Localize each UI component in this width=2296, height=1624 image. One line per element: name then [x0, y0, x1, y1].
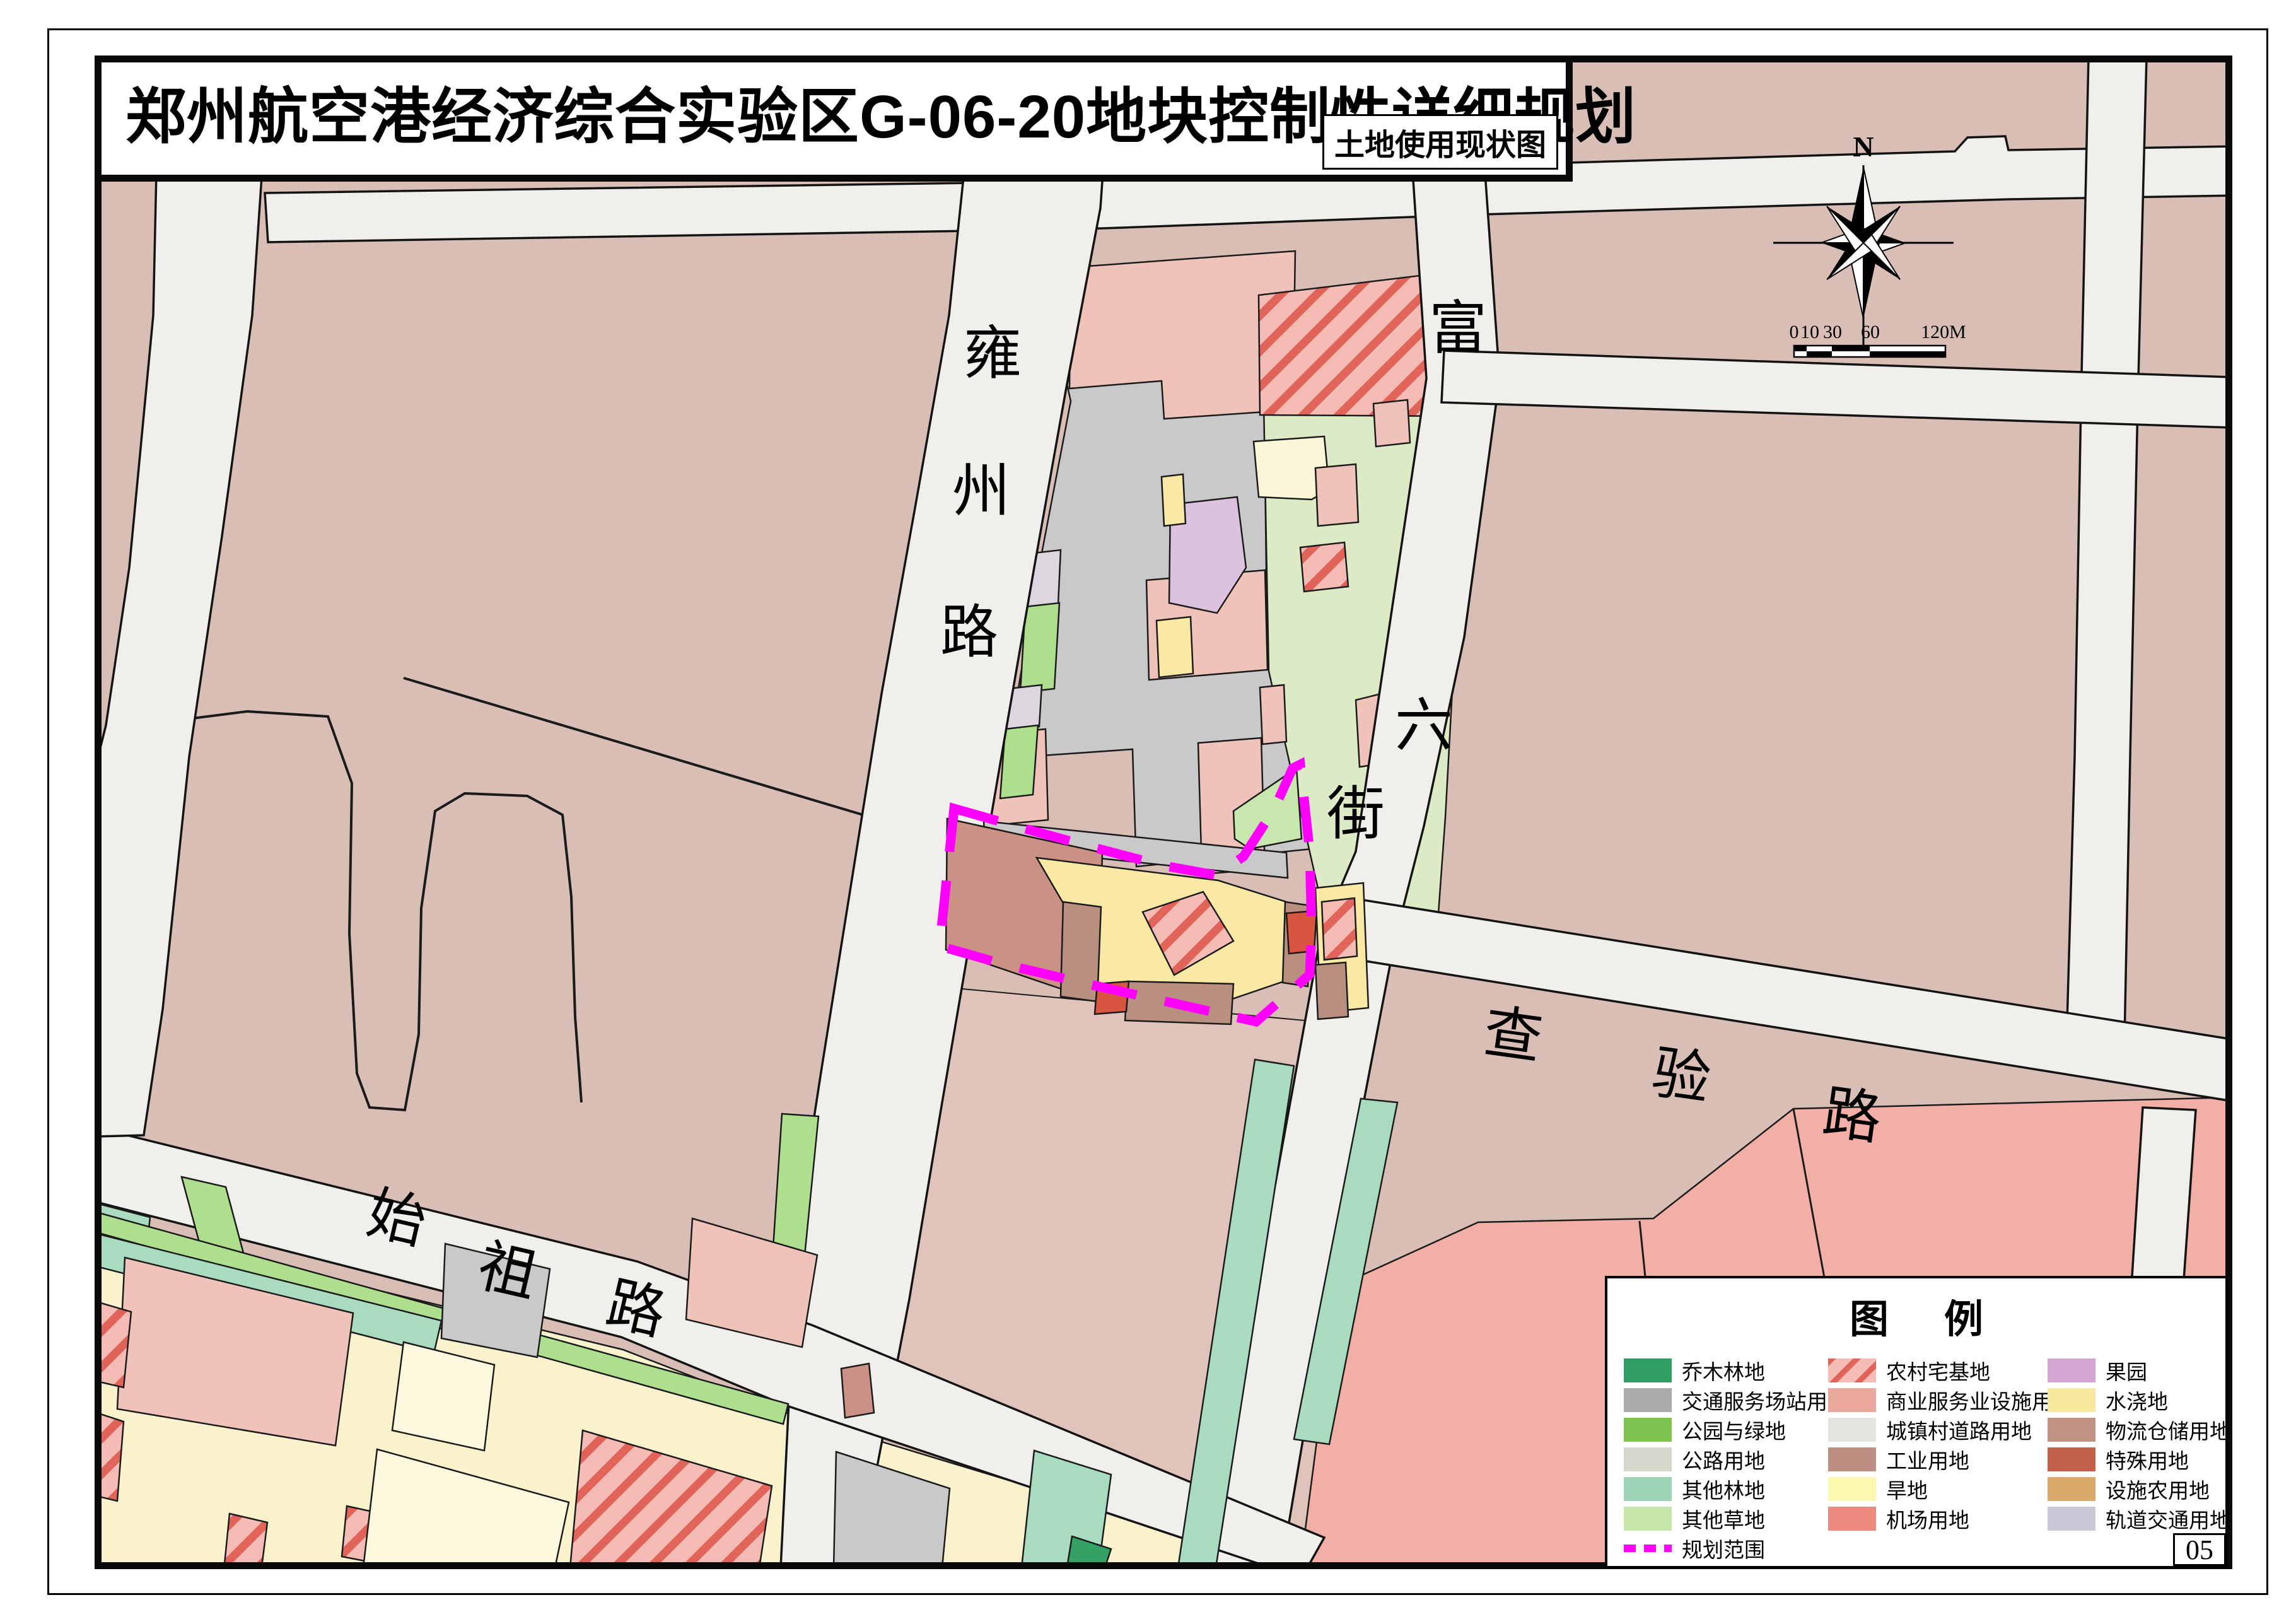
- legend-item-label: 物流仓储用地: [2106, 1415, 2230, 1445]
- legend-item: 果园: [2048, 1355, 2230, 1385]
- map-subtitle: 土地使用现状图: [1322, 114, 1558, 170]
- page-number-box: 05: [2173, 1533, 2226, 1566]
- legend-swatch-icon: [2048, 1358, 2095, 1382]
- legend-swatch-icon: [2048, 1477, 2095, 1501]
- planning-map-page: { "title": { "main": "郑州航空港经济综合实验区G-06-2…: [0, 0, 2296, 1624]
- legend-item-label: 乔木林地: [1682, 1355, 1765, 1386]
- legend-item-label: 其他林地: [1682, 1474, 1765, 1504]
- legend-swatch-icon: [1828, 1447, 1876, 1471]
- legend-col-2: 果园水浇地物流仓储用地特殊用地设施农用地轨道交通用地: [2048, 1355, 2230, 1533]
- legend-item-label: 机场用地: [1886, 1504, 1969, 1534]
- legend-item: 其他林地: [1624, 1474, 1848, 1504]
- legend-item: 特殊用地: [2048, 1444, 2230, 1474]
- legend-swatch-icon: [1828, 1477, 1876, 1501]
- legend-item: 物流仓储用地: [2048, 1415, 2230, 1444]
- legend-swatch-icon: [1828, 1418, 1876, 1442]
- legend-item-label: 轨道交通用地: [2106, 1504, 2230, 1534]
- legend-item: 城镇村道路用地: [1828, 1415, 2073, 1444]
- legend-swatch-icon: [1624, 1418, 1672, 1442]
- legend-item: 设施农用地: [2048, 1474, 2230, 1504]
- legend-swatch-icon: [2048, 1388, 2095, 1412]
- legend-item: 公园与绿地: [1624, 1415, 1848, 1444]
- legend: 图例 乔木林地交通服务场站用地公园与绿地公路用地其他林地其他草地规划范围 农村宅…: [1605, 1276, 2228, 1569]
- legend-item: 水浇地: [2048, 1385, 2230, 1415]
- legend-item: 公路用地: [1624, 1444, 1848, 1474]
- legend-item-label: 公路用地: [1682, 1444, 1765, 1475]
- legend-swatch-icon: [1624, 1507, 1672, 1531]
- legend-item: 乔木林地: [1624, 1355, 1848, 1385]
- legend-item: 交通服务场站用地: [1624, 1385, 1848, 1415]
- legend-col-0: 乔木林地交通服务场站用地公园与绿地公路用地其他林地其他草地规划范围: [1624, 1355, 1848, 1563]
- title-block: 郑州航空港经济综合实验区G-06-20地块控制性详细规划 土地使用现状图: [95, 55, 1573, 182]
- legend-swatch-icon: [1624, 1358, 1672, 1382]
- legend-swatch-icon: [1828, 1358, 1876, 1382]
- legend-item-label: 特殊用地: [2106, 1444, 2189, 1475]
- legend-item: 商业服务业设施用地: [1828, 1385, 2073, 1415]
- legend-dash-icon: [1624, 1545, 1672, 1552]
- page-number: 05: [2186, 1534, 2213, 1566]
- legend-item-label: 公园与绿地: [1682, 1415, 1786, 1445]
- legend-swatch-icon: [1624, 1447, 1672, 1471]
- legend-item-label: 交通服务场站用地: [1682, 1385, 1848, 1415]
- legend-item-label: 规划范围: [1682, 1533, 1765, 1563]
- legend-swatch-icon: [2048, 1447, 2095, 1471]
- legend-item-label: 工业用地: [1886, 1444, 1969, 1475]
- legend-swatch-icon: [2048, 1418, 2095, 1442]
- legend-item-label: 其他草地: [1682, 1504, 1765, 1534]
- legend-col-1: 农村宅基地商业服务业设施用地城镇村道路用地工业用地旱地机场用地: [1828, 1355, 2073, 1533]
- legend-item: 机场用地: [1828, 1504, 2073, 1533]
- legend-item: 轨道交通用地: [2048, 1504, 2230, 1533]
- legend-item-label: 设施农用地: [2106, 1474, 2210, 1504]
- legend-item-label: 果园: [2106, 1355, 2147, 1386]
- legend-item: 工业用地: [1828, 1444, 2073, 1474]
- legend-swatch-icon: [1624, 1477, 1672, 1501]
- legend-item-label: 旱地: [1886, 1474, 1928, 1504]
- legend-item: 农村宅基地: [1828, 1355, 2073, 1385]
- legend-item-label: 水浇地: [2106, 1385, 2168, 1415]
- legend-swatch-icon: [1624, 1388, 1672, 1412]
- legend-item-label: 城镇村道路用地: [1886, 1415, 2032, 1445]
- legend-item: 规划范围: [1624, 1533, 1848, 1563]
- legend-swatch-icon: [1828, 1507, 1876, 1531]
- legend-swatch-icon: [2048, 1507, 2095, 1531]
- legend-swatch-icon: [1828, 1388, 1876, 1412]
- legend-item: 其他草地: [1624, 1504, 1848, 1533]
- legend-item: 旱地: [1828, 1474, 2073, 1504]
- legend-title: 图例: [1607, 1287, 2225, 1344]
- legend-item-label: 商业服务业设施用地: [1886, 1385, 2073, 1415]
- legend-item-label: 农村宅基地: [1886, 1355, 1990, 1386]
